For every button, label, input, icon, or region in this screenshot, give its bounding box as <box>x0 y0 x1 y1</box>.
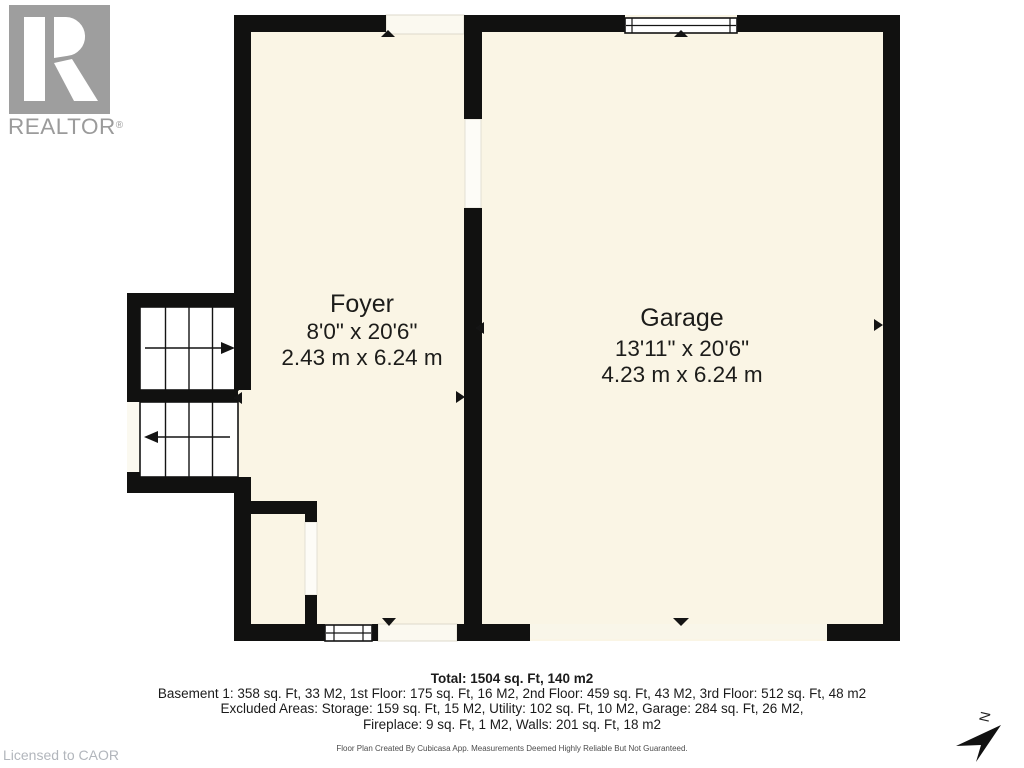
storage-door-opening <box>305 522 317 595</box>
north-arrow: N <box>945 702 1020 766</box>
foyer-window <box>325 625 372 641</box>
room-name: Garage <box>562 303 802 333</box>
room-label-garage: Garage 13'11" x 20'6" 4.23 m x 6.24 m <box>562 303 802 387</box>
foyer-top-door-opening <box>386 15 464 34</box>
room-dimensions-metric: 4.23 m x 6.24 m <box>562 362 802 388</box>
room-dimensions-metric: 2.43 m x 6.24 m <box>242 345 482 371</box>
north-arrow-pointer <box>956 725 1001 762</box>
stairwell-side-door-opening <box>127 402 140 472</box>
garage-door-opening <box>530 624 827 639</box>
room-name: Foyer <box>242 289 482 319</box>
floor-plan-page: REALTOR® <box>0 0 1024 768</box>
north-arrow-icon: N <box>945 702 1020 766</box>
north-label: N <box>976 710 994 723</box>
summary-excluded-areas: Excluded Areas: Storage: 159 sq. Ft, 15 … <box>0 701 1024 716</box>
disclaimer-text: Floor Plan Created By Cubicasa App. Meas… <box>0 744 1024 753</box>
area-summary: Total: 1504 sq. Ft, 140 m2 Basement 1: 3… <box>0 671 1024 732</box>
summary-floors: Basement 1: 358 sq. Ft, 33 M2, 1st Floor… <box>0 686 1024 701</box>
foyer-garage-door-opening <box>465 119 481 208</box>
summary-total: Total: 1504 sq. Ft, 140 m2 <box>0 671 1024 686</box>
room-label-foyer: Foyer 8'0" x 20'6" 2.43 m x 6.24 m <box>242 289 482 370</box>
stair-flight-lower <box>140 402 238 477</box>
license-text: Licensed to CAOR <box>3 747 119 763</box>
summary-excluded-areas-continued: Fireplace: 9 sq. Ft, 1 M2, Walls: 201 sq… <box>0 717 1024 732</box>
room-dimensions-imperial: 13'11" x 20'6" <box>562 336 802 362</box>
stair-flight-upper <box>140 307 238 390</box>
floor-plan-canvas <box>0 0 1024 768</box>
foyer-bottom-door-opening <box>378 624 457 641</box>
room-dimensions-imperial: 8'0" x 20'6" <box>242 319 482 345</box>
